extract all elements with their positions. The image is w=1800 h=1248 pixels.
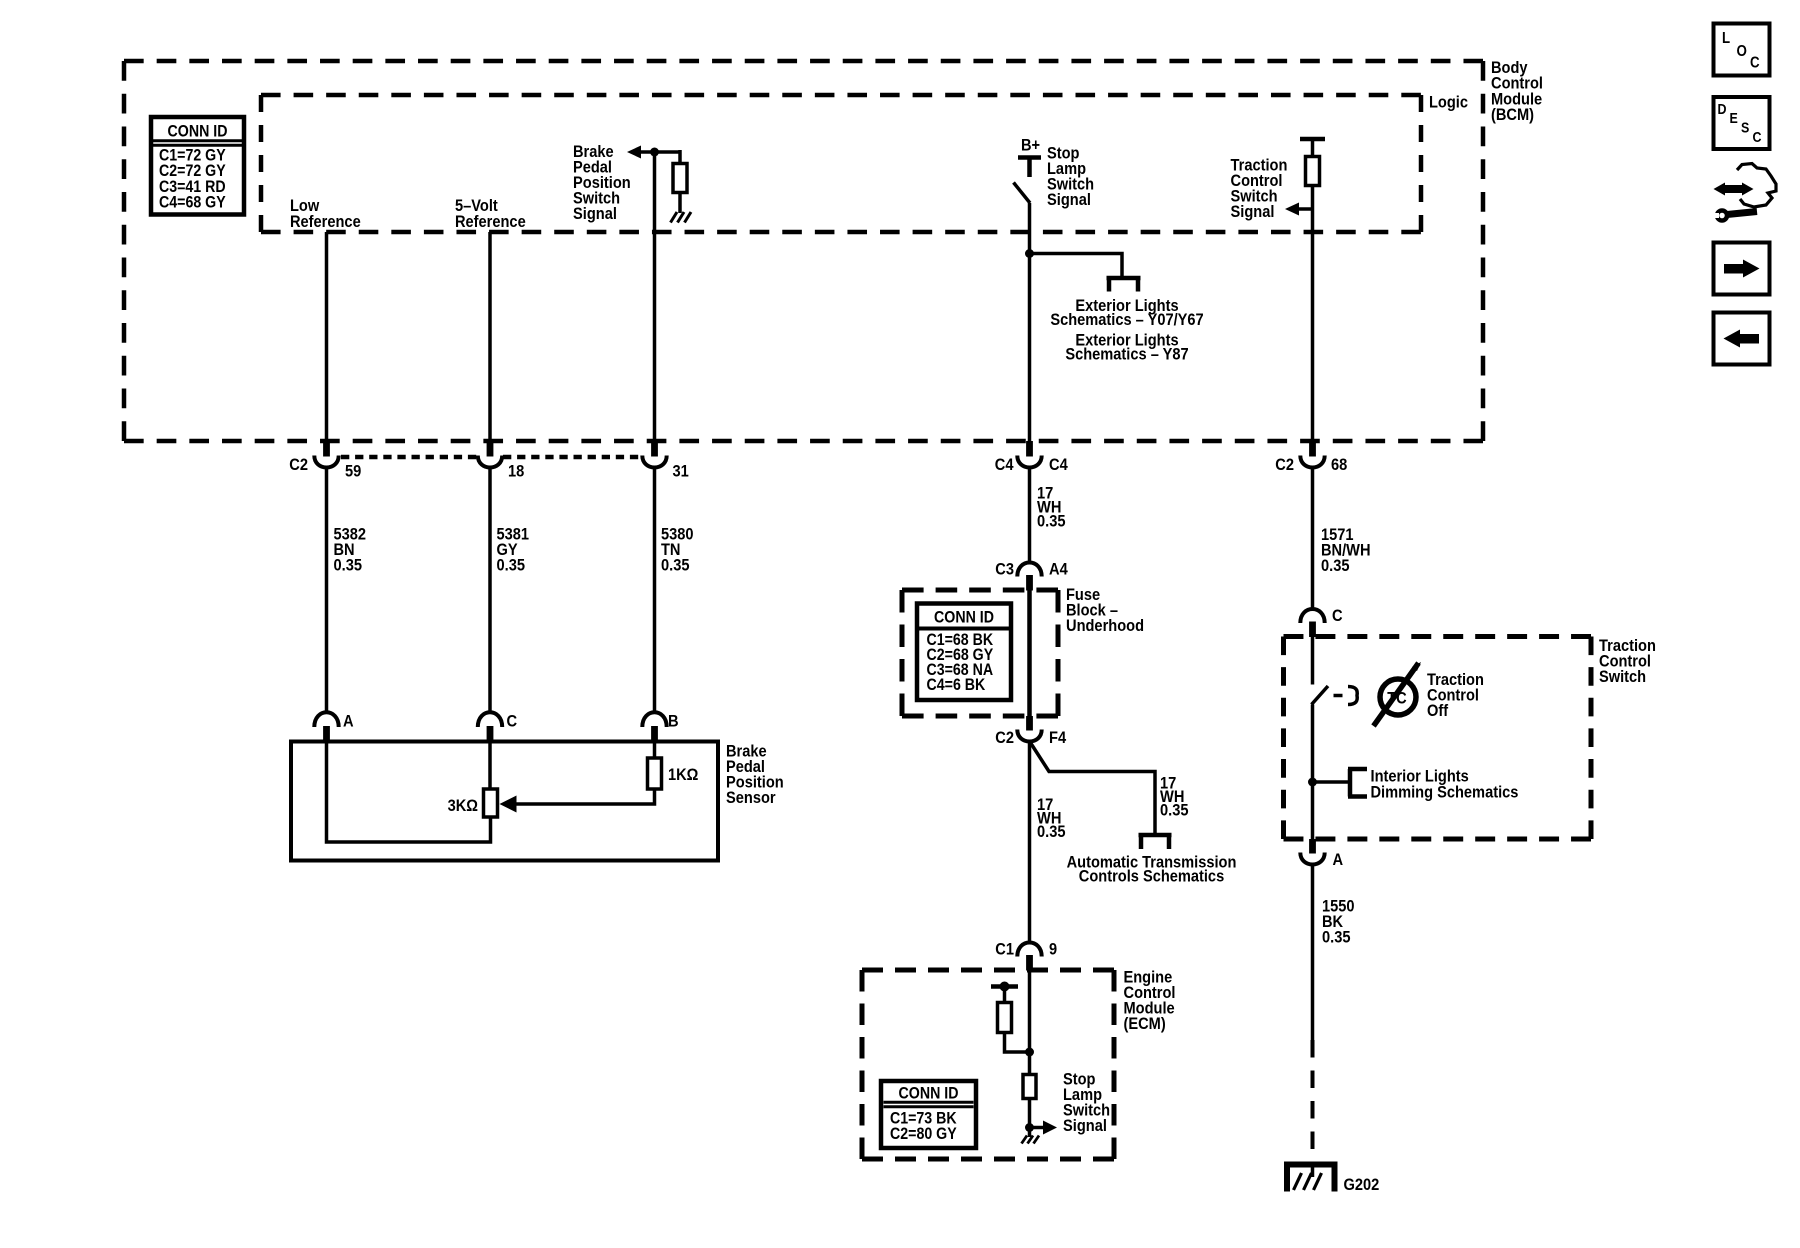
svg-text:0.35: 0.35 [1321, 556, 1350, 575]
svg-text:G202: G202 [1344, 1175, 1380, 1194]
svg-text:0.35: 0.35 [1037, 822, 1066, 841]
svg-text:Underhood: Underhood [1066, 616, 1144, 635]
svg-text:31: 31 [673, 462, 689, 481]
svg-text:0.35: 0.35 [497, 556, 526, 575]
svg-text:18: 18 [508, 462, 524, 481]
svg-text:F4: F4 [1049, 728, 1067, 747]
svg-text:Reference: Reference [455, 212, 526, 231]
svg-text:Schematics – Y07/Y67: Schematics – Y07/Y67 [1050, 310, 1203, 329]
svg-text:D: D [1718, 102, 1727, 118]
svg-text:C2: C2 [289, 455, 308, 474]
svg-text:Sensor: Sensor [726, 788, 776, 807]
svg-text:Logic: Logic [1429, 93, 1468, 112]
svg-text:C: C [507, 712, 518, 731]
svg-text:Signal: Signal [1047, 190, 1091, 209]
svg-text:Off: Off [1427, 701, 1448, 720]
svg-text:C2: C2 [1275, 455, 1294, 474]
svg-text:C: C [1332, 606, 1343, 625]
svg-text:CONN ID: CONN ID [168, 123, 228, 141]
svg-text:0.35: 0.35 [1322, 928, 1351, 947]
svg-text:CONN ID: CONN ID [934, 609, 994, 627]
svg-text:B: B [668, 712, 679, 731]
svg-text:Controls Schematics: Controls Schematics [1079, 867, 1224, 886]
svg-text:C: C [1750, 55, 1760, 72]
svg-text:0.35: 0.35 [661, 556, 690, 575]
svg-text:C4: C4 [1049, 455, 1068, 474]
svg-text:0.35: 0.35 [334, 556, 363, 575]
svg-text:Signal: Signal [1231, 202, 1275, 221]
svg-text:59: 59 [345, 462, 361, 481]
svg-text:A: A [1333, 850, 1344, 869]
svg-text:C2: C2 [995, 728, 1014, 747]
svg-text:9: 9 [1049, 940, 1057, 959]
svg-text:68: 68 [1331, 455, 1347, 474]
svg-text:S: S [1741, 121, 1750, 137]
svg-text:B+: B+ [1021, 136, 1040, 155]
svg-text:Schematics – Y87: Schematics – Y87 [1065, 345, 1188, 364]
svg-text:C4=68 GY: C4=68 GY [159, 194, 226, 212]
svg-text:L: L [1722, 30, 1730, 47]
svg-text:0.35: 0.35 [1160, 801, 1189, 820]
svg-text:A: A [343, 712, 354, 731]
svg-text:3KΩ: 3KΩ [448, 796, 478, 815]
svg-text:CONN ID: CONN ID [899, 1085, 959, 1103]
svg-text:C4: C4 [995, 455, 1014, 474]
svg-text:Signal: Signal [573, 204, 617, 223]
svg-text:0.35: 0.35 [1037, 512, 1066, 531]
svg-text:(BCM): (BCM) [1491, 105, 1534, 124]
svg-text:E: E [1730, 111, 1739, 127]
svg-text:Dimming Schematics: Dimming Schematics [1371, 783, 1519, 802]
svg-text:C2=80 GY: C2=80 GY [890, 1125, 957, 1143]
svg-text:Switch: Switch [1599, 667, 1646, 686]
svg-text:A4: A4 [1049, 560, 1068, 579]
svg-text:O: O [1737, 43, 1747, 60]
svg-text:Signal: Signal [1063, 1116, 1107, 1135]
svg-text:1KΩ: 1KΩ [668, 765, 698, 784]
svg-text:C4=6 BK: C4=6 BK [927, 676, 986, 694]
svg-text:(ECM): (ECM) [1124, 1014, 1166, 1033]
svg-text:C: C [1753, 130, 1762, 146]
svg-text:Reference: Reference [290, 212, 361, 231]
svg-text:C3: C3 [995, 560, 1014, 579]
svg-text:C1: C1 [995, 940, 1014, 959]
